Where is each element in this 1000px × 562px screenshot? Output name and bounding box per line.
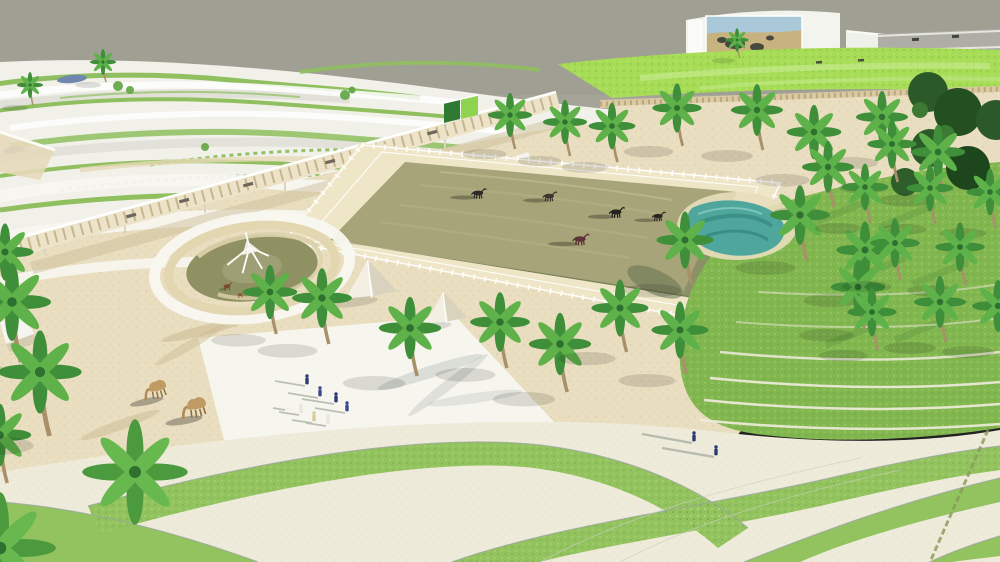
person [714, 445, 717, 455]
person [312, 411, 315, 421]
person [692, 431, 695, 441]
person [334, 392, 337, 402]
person [326, 414, 329, 424]
person [318, 386, 321, 396]
rendering-canvas [0, 0, 1000, 562]
person [305, 374, 308, 384]
person [345, 401, 348, 411]
shrub [816, 61, 822, 64]
car [952, 35, 959, 38]
shrub [858, 59, 864, 62]
person [299, 403, 302, 413]
car [912, 38, 919, 41]
small-animal [285, 408, 289, 411]
park-rendering [0, 0, 1000, 562]
